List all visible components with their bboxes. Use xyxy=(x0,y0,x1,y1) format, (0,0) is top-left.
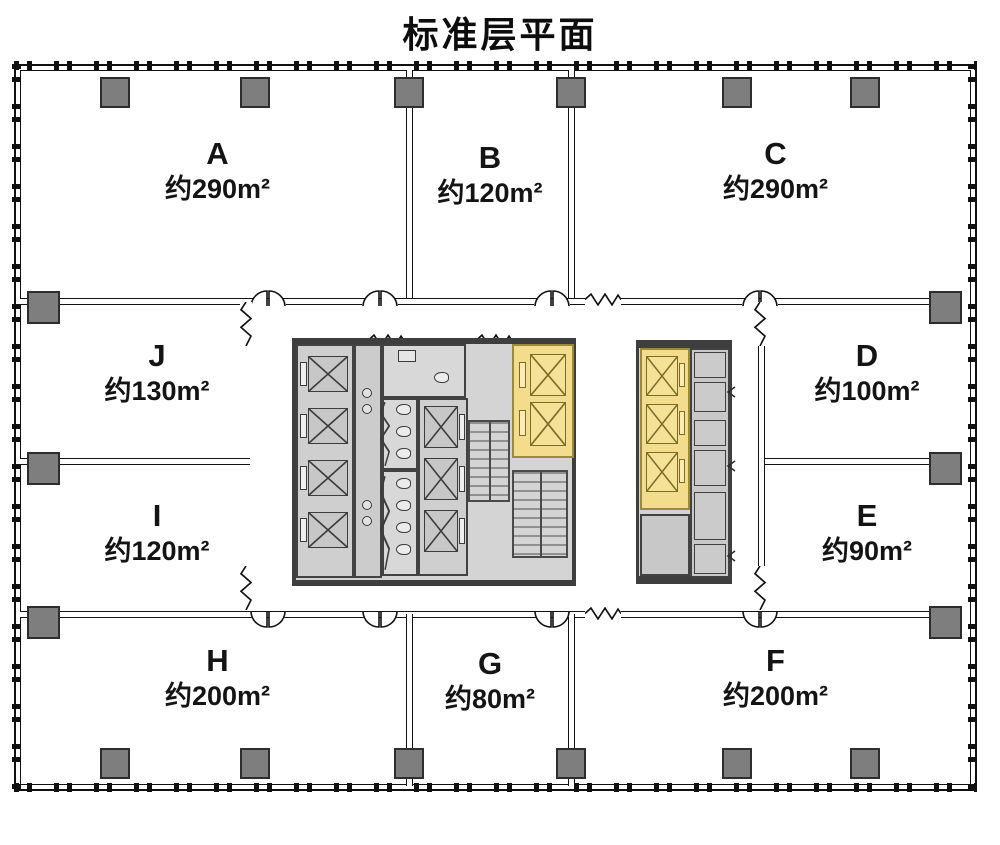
elevator-door xyxy=(300,518,307,542)
unit-label-i: I 约120m² xyxy=(62,500,252,565)
stairwell xyxy=(512,470,568,558)
column xyxy=(929,606,962,639)
door-swing-icon xyxy=(362,289,398,306)
unit-label-h: H 约200m² xyxy=(105,645,330,710)
highlighted-elevator-icon xyxy=(646,404,678,444)
unit-letter: G xyxy=(400,648,580,681)
elevator-icon xyxy=(308,512,348,548)
column xyxy=(394,77,424,108)
unit-area: 约130m² xyxy=(62,377,252,405)
door-arrow-icon xyxy=(726,386,736,398)
toilet-icon xyxy=(396,500,411,511)
unit-label-f: F 约200m² xyxy=(663,645,888,710)
unit-letter: D xyxy=(772,340,962,373)
door-swing-icon xyxy=(742,612,778,629)
elevator-door xyxy=(300,362,307,386)
elevator-door xyxy=(300,414,307,438)
column xyxy=(556,77,586,108)
elevator-icon xyxy=(308,408,348,444)
wc-room xyxy=(382,344,466,398)
elevator-door xyxy=(459,414,465,440)
unit-area: 约200m² xyxy=(105,682,330,710)
mullion-ticks-left xyxy=(12,64,21,791)
unit-label-b: B 约120m² xyxy=(400,142,580,207)
unit-area: 约290m² xyxy=(105,175,330,203)
door-arrow-icon xyxy=(726,550,736,562)
column xyxy=(100,748,130,779)
column xyxy=(100,77,130,108)
unit-label-j: J 约130m² xyxy=(62,340,252,405)
column xyxy=(850,748,880,779)
opening-break-icon xyxy=(585,293,621,306)
utility-room xyxy=(694,352,726,378)
opening-break-icon xyxy=(754,302,766,346)
highlighted-elevator-icon xyxy=(530,402,566,446)
elevator-door xyxy=(519,362,526,388)
stall-partition-icon xyxy=(380,476,390,570)
column xyxy=(240,748,270,779)
column xyxy=(722,77,752,108)
page-title: 标准层平面 xyxy=(0,6,1000,58)
door-swing-icon xyxy=(362,612,398,629)
unit-letter: C xyxy=(663,138,888,171)
column xyxy=(850,77,880,108)
utility-room xyxy=(694,382,726,412)
unit-label-g: G 约80m² xyxy=(400,648,580,713)
unit-letter: E xyxy=(772,500,962,533)
fixture-icon xyxy=(362,404,372,414)
toilet-icon xyxy=(434,372,449,383)
mullion-ticks-bottom xyxy=(14,783,977,792)
column xyxy=(240,77,270,108)
unit-letter: I xyxy=(62,500,252,533)
unit-letter: B xyxy=(400,142,580,175)
stair-divider xyxy=(540,472,542,556)
unit-letter: F xyxy=(663,645,888,678)
column xyxy=(27,606,60,639)
sink-icon xyxy=(398,350,416,362)
toilet-icon xyxy=(396,426,411,437)
unit-label-d: D 约100m² xyxy=(772,340,962,405)
column xyxy=(929,452,962,485)
utility-room xyxy=(694,544,726,574)
column xyxy=(722,748,752,779)
elevator-door xyxy=(300,466,307,490)
elevator-door xyxy=(679,363,685,387)
door-swing-icon xyxy=(250,289,286,306)
unit-area: 约290m² xyxy=(663,175,888,203)
stall-partition-icon xyxy=(380,402,390,466)
highlighted-elevator-icon xyxy=(646,356,678,396)
stair-divider xyxy=(489,422,491,500)
door-swing-icon xyxy=(250,612,286,629)
elevator-door xyxy=(679,459,685,483)
elevator-door xyxy=(519,410,526,436)
toilet-icon xyxy=(396,544,411,555)
elevator-icon xyxy=(308,460,348,496)
elevator-door xyxy=(459,518,465,544)
opening-break-icon xyxy=(240,566,252,610)
mullion-ticks-top xyxy=(14,61,977,70)
wall-corridor-top xyxy=(20,298,962,305)
stairwell xyxy=(468,420,510,502)
service-shaft-room xyxy=(354,344,382,578)
highlighted-elevator-icon xyxy=(530,354,566,396)
opening-break-icon xyxy=(585,607,621,620)
highlighted-elevator-icon xyxy=(646,452,678,492)
unit-area: 约100m² xyxy=(772,377,962,405)
unit-label-c: C 约290m² xyxy=(663,138,888,203)
unit-label-a: A 约290m² xyxy=(105,138,330,203)
unit-letter: A xyxy=(105,138,330,171)
column xyxy=(929,291,962,324)
unit-area: 约120m² xyxy=(400,179,580,207)
elevator-icon xyxy=(424,406,458,448)
utility-room xyxy=(694,450,726,486)
door-swing-icon xyxy=(534,612,570,629)
wall-de-west xyxy=(758,344,765,576)
unit-letter: J xyxy=(62,340,252,373)
fixture-icon xyxy=(362,516,372,526)
elevator-icon xyxy=(424,510,458,552)
column xyxy=(27,291,60,324)
column xyxy=(27,452,60,485)
door-swing-icon xyxy=(534,289,570,306)
mullion-ticks-right xyxy=(968,64,977,791)
utility-room xyxy=(640,514,690,576)
toilet-icon xyxy=(396,522,411,533)
fixture-icon xyxy=(362,500,372,510)
unit-area: 约200m² xyxy=(663,682,888,710)
elevator-icon xyxy=(308,356,348,392)
fixture-icon xyxy=(362,388,372,398)
unit-label-e: E 约90m² xyxy=(772,500,962,565)
unit-area: 约80m² xyxy=(400,685,580,713)
column xyxy=(394,748,424,779)
utility-room xyxy=(694,420,726,446)
column xyxy=(556,748,586,779)
toilet-icon xyxy=(396,404,411,415)
unit-area: 约90m² xyxy=(772,537,962,565)
unit-letter: H xyxy=(105,645,330,678)
utility-room xyxy=(694,492,726,540)
opening-break-icon xyxy=(754,566,766,610)
elevator-door xyxy=(679,411,685,435)
toilet-icon xyxy=(396,448,411,459)
toilet-icon xyxy=(396,478,411,489)
unit-area: 约120m² xyxy=(62,537,252,565)
door-arrow-icon xyxy=(726,460,736,472)
floor-plan: 标准层平面 xyxy=(0,0,1000,845)
elevator-door xyxy=(459,466,465,492)
wall-corridor-bottom xyxy=(20,611,962,618)
elevator-icon xyxy=(424,458,458,500)
